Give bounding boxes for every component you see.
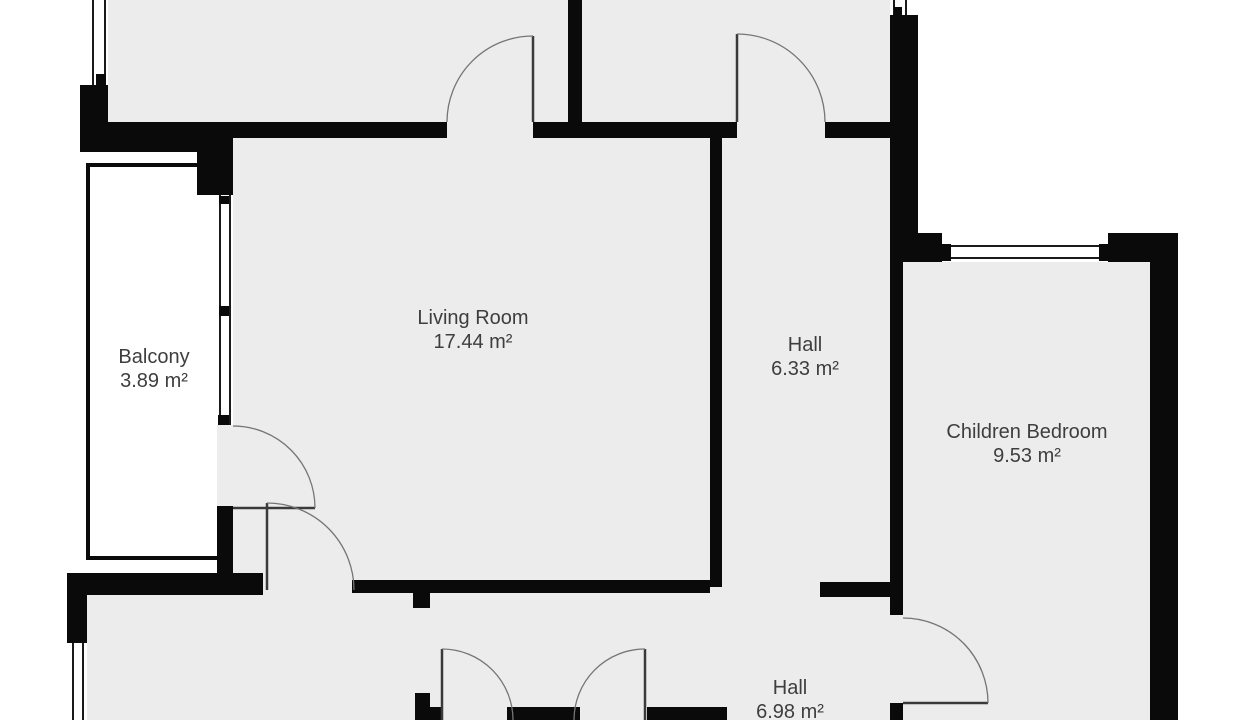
room-name-living-room: Living Room bbox=[417, 306, 528, 330]
room-name-hall-lower: Hall bbox=[756, 676, 824, 700]
room-area-hall-upper: 6.33 m² bbox=[771, 357, 839, 381]
wall-hall-bottom-stub bbox=[820, 582, 903, 597]
wall-exterior-step bbox=[197, 148, 233, 195]
wall-bedroom-window-post-left bbox=[903, 233, 942, 262]
room-name-balcony: Balcony bbox=[118, 345, 189, 369]
wall-top-row-b bbox=[533, 122, 737, 138]
wall-top-rooms-divider bbox=[568, 0, 582, 138]
window-bedroom-tick-right bbox=[1099, 244, 1108, 261]
wall-left-lower bbox=[67, 595, 87, 643]
window-balcony-tick-top bbox=[219, 196, 229, 204]
room-area-balcony: 3.89 m² bbox=[118, 369, 189, 393]
window-top-right-tick bbox=[894, 7, 902, 18]
room-label-hall-upper: Hall 6.33 m² bbox=[771, 333, 839, 381]
window-bottom-left-line-a bbox=[72, 643, 74, 720]
room-label-children-bedroom: Children Bedroom 9.53 m² bbox=[946, 420, 1107, 468]
room-area-children-bedroom: 9.53 m² bbox=[946, 444, 1107, 468]
window-balcony-line-b bbox=[229, 195, 231, 425]
window-bedroom-line-b bbox=[942, 257, 1108, 259]
window-bedroom-line-a bbox=[942, 245, 1108, 247]
room-name-hall-upper: Hall bbox=[771, 333, 839, 357]
room-label-balcony: Balcony 3.89 m² bbox=[118, 345, 189, 393]
window-balcony-tick-mid bbox=[219, 306, 229, 316]
wall-hall-bedroom-divider bbox=[890, 235, 903, 615]
wall-bedroom-right bbox=[1150, 262, 1178, 720]
window-top-right-line-b bbox=[905, 0, 907, 15]
wall-top-row-c bbox=[825, 122, 890, 138]
wall-bottom-segment-1 bbox=[507, 707, 580, 720]
balcony-rail-left bbox=[86, 163, 90, 560]
wall-lower-room-stub-top bbox=[413, 593, 430, 608]
window-balcony-tick-bottom bbox=[218, 415, 229, 425]
floor-living-room bbox=[217, 130, 722, 600]
balcony-rail-bottom bbox=[86, 556, 217, 560]
wall-living-bottom bbox=[352, 580, 710, 593]
wall-bottom-segment-2 bbox=[647, 707, 727, 720]
floor-plan: Balcony 3.89 m² Living Room 17.44 m² Hal… bbox=[0, 0, 1240, 720]
wall-bedroom-window-post-right bbox=[1108, 233, 1178, 262]
room-area-living-room: 17.44 m² bbox=[417, 330, 528, 354]
window-bottom-left-line-b bbox=[82, 643, 84, 720]
wall-exterior-bottom-left bbox=[67, 573, 263, 595]
wall-lower-room-stub-bottom-b bbox=[430, 707, 442, 720]
room-label-living-room: Living Room 17.44 m² bbox=[417, 306, 528, 354]
room-area-hall-lower: 6.98 m² bbox=[756, 700, 824, 720]
wall-bedroom-door-stub bbox=[890, 703, 903, 720]
wall-top-left-post bbox=[80, 85, 108, 122]
wall-right-upper bbox=[890, 15, 918, 235]
wall-top-row-a bbox=[233, 122, 447, 138]
window-top-left-line-a bbox=[92, 0, 94, 85]
window-top-left-line-b bbox=[104, 0, 106, 85]
floor-children-bedroom bbox=[890, 245, 1160, 720]
room-name-children-bedroom: Children Bedroom bbox=[946, 420, 1107, 444]
wall-living-hall-divider bbox=[710, 133, 722, 587]
room-label-hall-lower: Hall 6.98 m² bbox=[756, 676, 824, 720]
window-bedroom-tick-left bbox=[942, 244, 951, 261]
window-top-left-tick bbox=[96, 74, 106, 85]
wall-lower-room-stub-bottom bbox=[415, 693, 430, 720]
